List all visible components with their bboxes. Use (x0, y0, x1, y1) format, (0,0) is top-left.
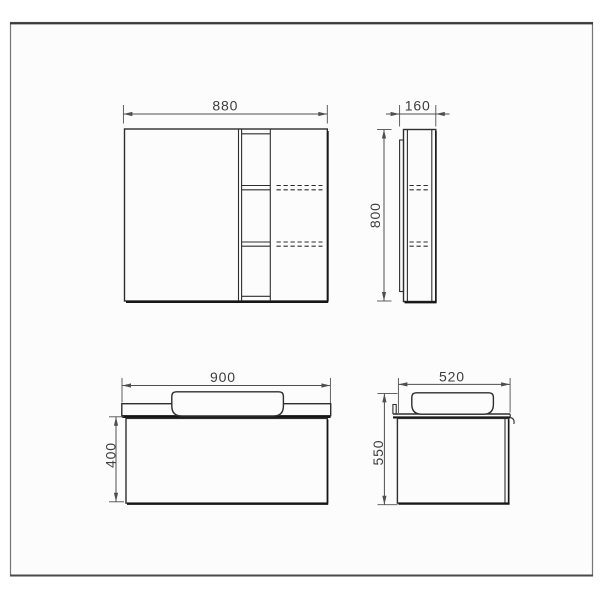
technical-drawing-canvas: 880 160 (0, 0, 600, 600)
vanity-height-dimension-label: 400 (102, 442, 118, 468)
mirror-width-dimension-label: 880 (212, 98, 238, 114)
vanity-total-height-dimension-label: 550 (370, 440, 386, 466)
drawing-page: 880 160 (0, 0, 600, 600)
washbasin-front (172, 392, 284, 416)
vanity-width-dimension-label: 900 (210, 369, 236, 385)
vanity-depth-dimension-label: 520 (439, 368, 465, 384)
washbasin-side (412, 393, 494, 414)
mirror-depth-dimension-label: 160 (405, 98, 431, 114)
mirror-height-dimension-label: 800 (367, 202, 383, 228)
